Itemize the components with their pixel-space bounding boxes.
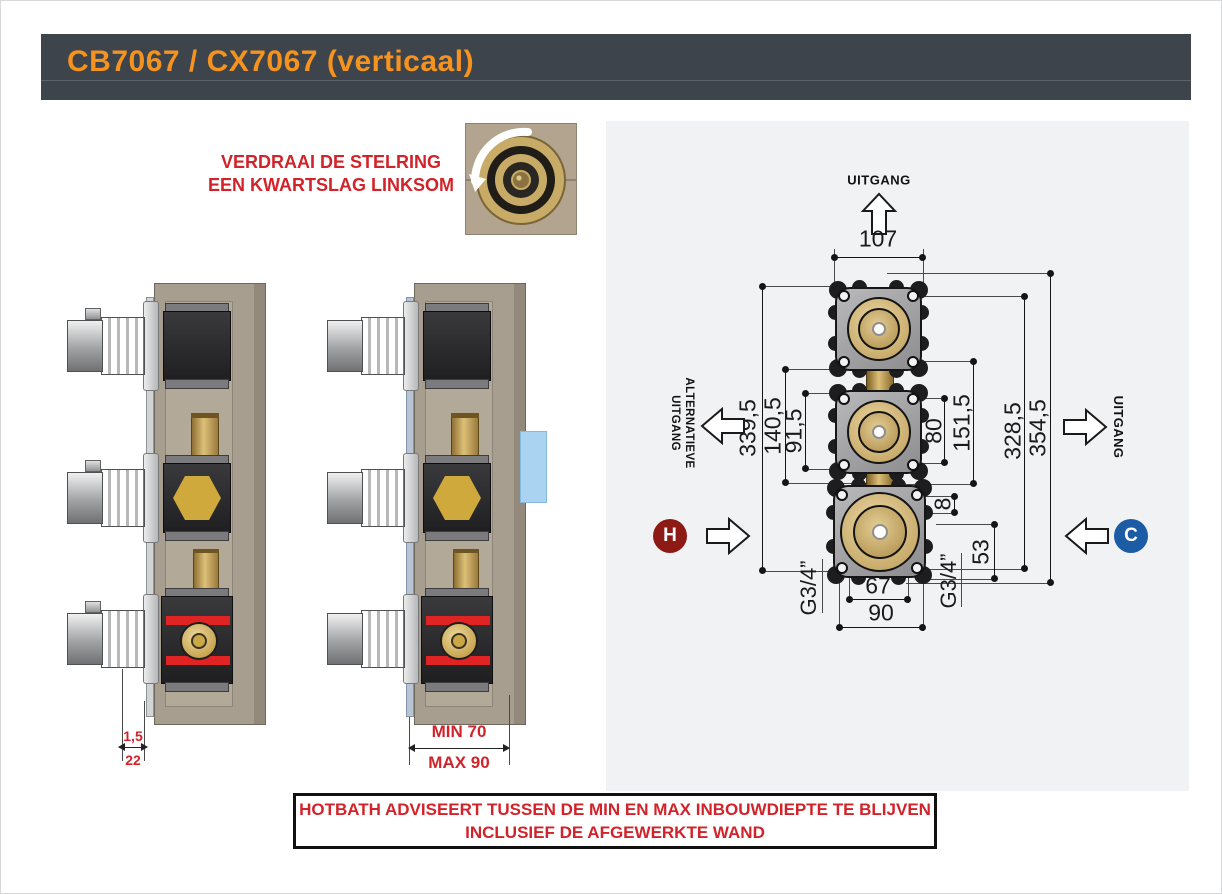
finished-wall-tile — [520, 431, 547, 503]
stelring-drawing — [466, 124, 576, 234]
dim-80: 80 — [921, 418, 948, 444]
valve-knob — [101, 317, 145, 375]
valve-body — [163, 311, 231, 381]
dim-8: 8 — [930, 498, 957, 511]
side-view-rough-in: 1,5 22 — [61, 271, 311, 781]
valve-unit-front-thermostat — [832, 484, 927, 579]
page-title: CB7067 / CX7067 (verticaal) — [67, 45, 474, 79]
valve-knob — [361, 610, 405, 668]
dimension-diagram-panel: UITGANG 107 — [606, 121, 1189, 791]
hot-indicator: H — [653, 519, 687, 553]
dim-min-depth: MIN 70 — [432, 722, 487, 742]
stelring-image — [465, 123, 577, 235]
dim-53: 53 — [968, 539, 995, 565]
valve-knob — [101, 610, 145, 668]
valve-knob — [101, 469, 145, 527]
arrow-right-icon — [1062, 408, 1108, 446]
valve-flange — [143, 594, 159, 684]
valve-unit-front-top — [834, 286, 923, 372]
dim-max-depth: MAX 90 — [428, 753, 489, 773]
alt-outlet-label: ALTERNATIEVE UITGANG — [668, 377, 696, 468]
valve-flange — [143, 453, 159, 543]
instruction-line-1: VERDRAAI DE STELRING — [186, 151, 476, 174]
thermostat-cartridge — [180, 622, 218, 660]
dim-depth-22: 22 — [125, 752, 141, 768]
header-divider — [41, 80, 1191, 81]
warning-line-1: HOTBATH ADVISEERT TUSSEN DE MIN EN MAX I… — [299, 798, 931, 821]
dim-151-5: 151,5 — [949, 394, 976, 452]
dim-91-5: 91,5 — [781, 409, 808, 454]
valve-knob — [361, 469, 405, 527]
thermostat-cartridge — [440, 622, 478, 660]
dim-67: 67 — [865, 573, 891, 600]
arrow-left-icon — [700, 407, 746, 445]
arrow-left-icon — [1064, 517, 1110, 555]
header-bar: CB7067 / CX7067 (verticaal) — [41, 34, 1191, 100]
dim-328-5: 328,5 — [1000, 402, 1027, 460]
warning-line-2: INCLUSIEF DE AFGEWERKTE WAND — [465, 821, 765, 844]
instruction-line-2: EEN KWARTSLAG LINKSOM — [186, 174, 476, 197]
side-view-finished-wall: MIN 70 MAX 90 — [321, 271, 581, 781]
valve-knob — [361, 317, 405, 375]
cold-indicator: C — [1114, 519, 1148, 553]
dim-plate-thickness: 1,5 — [123, 728, 142, 744]
valve-body — [423, 311, 491, 381]
dim-354-5: 354,5 — [1025, 399, 1052, 457]
dim-g34-right: G3/4” — [936, 553, 962, 608]
warning-box: HOTBATH ADVISEERT TUSSEN DE MIN EN MAX I… — [293, 793, 937, 849]
valve-flange — [143, 301, 159, 391]
valve-unit-front-middle — [834, 389, 923, 475]
instruction-text: VERDRAAI DE STELRING EEN KWARTSLAG LINKS… — [186, 151, 476, 197]
arrow-right-icon — [705, 517, 751, 555]
dim-107: 107 — [859, 226, 897, 253]
spec-sheet-page: CB7067 / CX7067 (verticaal) VERDRAAI DE … — [0, 0, 1222, 894]
outlet-top-label: UITGANG — [847, 173, 910, 188]
dim-g34-left: G3/4” — [796, 560, 822, 615]
dim-90: 90 — [868, 600, 894, 627]
outlet-right-label: UITGANG — [1111, 396, 1125, 459]
